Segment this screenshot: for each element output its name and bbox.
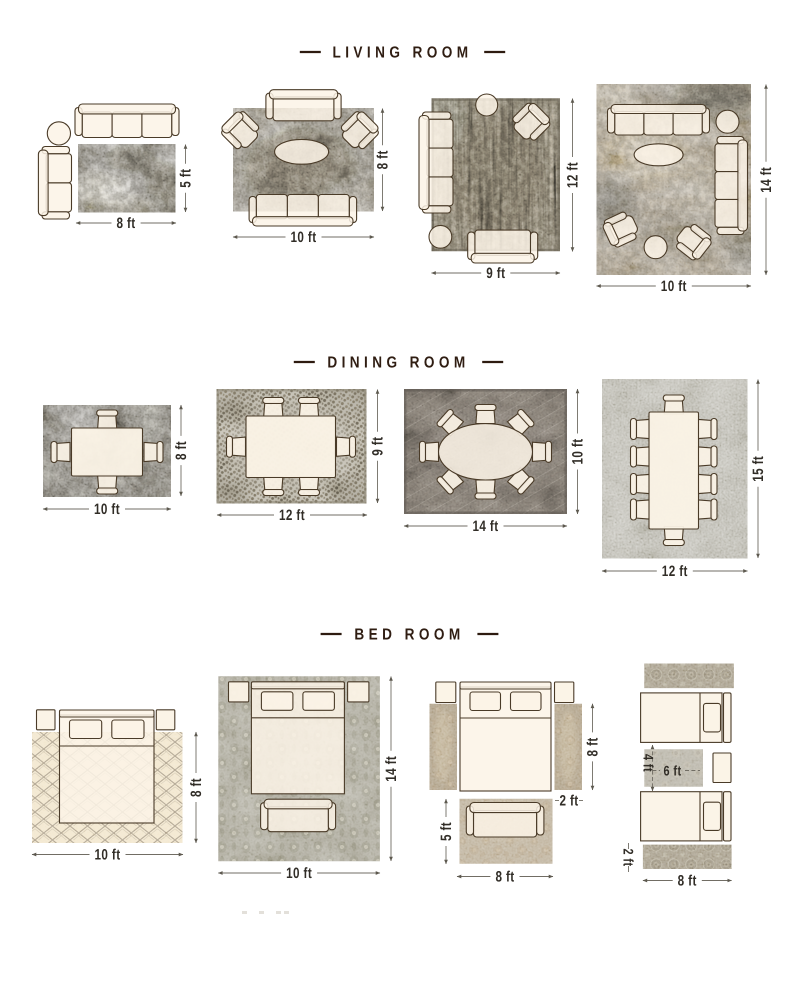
svg-text:10 ft: 10 ft bbox=[661, 278, 687, 295]
svg-text:8 ft: 8 ft bbox=[585, 737, 602, 756]
svg-text:DINING ROOM: DINING ROOM bbox=[327, 355, 469, 372]
svg-text:12 ft: 12 ft bbox=[662, 563, 688, 580]
svg-text:5 ft: 5 ft bbox=[178, 169, 195, 188]
svg-text:8 ft: 8 ft bbox=[678, 873, 697, 890]
svg-text:12 ft: 12 ft bbox=[565, 162, 582, 188]
svg-text:15 ft: 15 ft bbox=[750, 456, 767, 482]
svg-text:8 ft: 8 ft bbox=[495, 869, 514, 886]
svg-text:8 ft: 8 ft bbox=[188, 778, 205, 797]
svg-text:10 ft: 10 ft bbox=[290, 229, 316, 246]
svg-text:LIVING ROOM: LIVING ROOM bbox=[332, 45, 472, 62]
svg-text:4 ft: 4 ft bbox=[640, 754, 656, 772]
svg-text:10 ft: 10 ft bbox=[570, 438, 587, 464]
svg-text:9 ft: 9 ft bbox=[370, 437, 387, 456]
svg-text:BED ROOM: BED ROOM bbox=[354, 627, 464, 644]
svg-text:14 ft: 14 ft bbox=[472, 518, 498, 535]
svg-text:12 ft: 12 ft bbox=[279, 507, 305, 524]
svg-text:10 ft: 10 ft bbox=[94, 501, 120, 518]
svg-text:8 ft: 8 ft bbox=[173, 441, 190, 460]
svg-text:6 ft: 6 ft bbox=[664, 763, 682, 779]
svg-text:2 ft: 2 ft bbox=[620, 849, 636, 867]
svg-text:8 ft: 8 ft bbox=[116, 215, 135, 232]
svg-text:10 ft: 10 ft bbox=[94, 847, 120, 864]
svg-text:5 ft: 5 ft bbox=[438, 822, 455, 841]
svg-text:10 ft: 10 ft bbox=[286, 865, 312, 882]
svg-text:9 ft: 9 ft bbox=[486, 265, 505, 282]
svg-text:14 ft: 14 ft bbox=[758, 167, 775, 193]
svg-text:8 ft: 8 ft bbox=[375, 150, 392, 169]
svg-text:2 ft: 2 ft bbox=[559, 793, 578, 810]
svg-text:14 ft: 14 ft bbox=[383, 756, 400, 782]
